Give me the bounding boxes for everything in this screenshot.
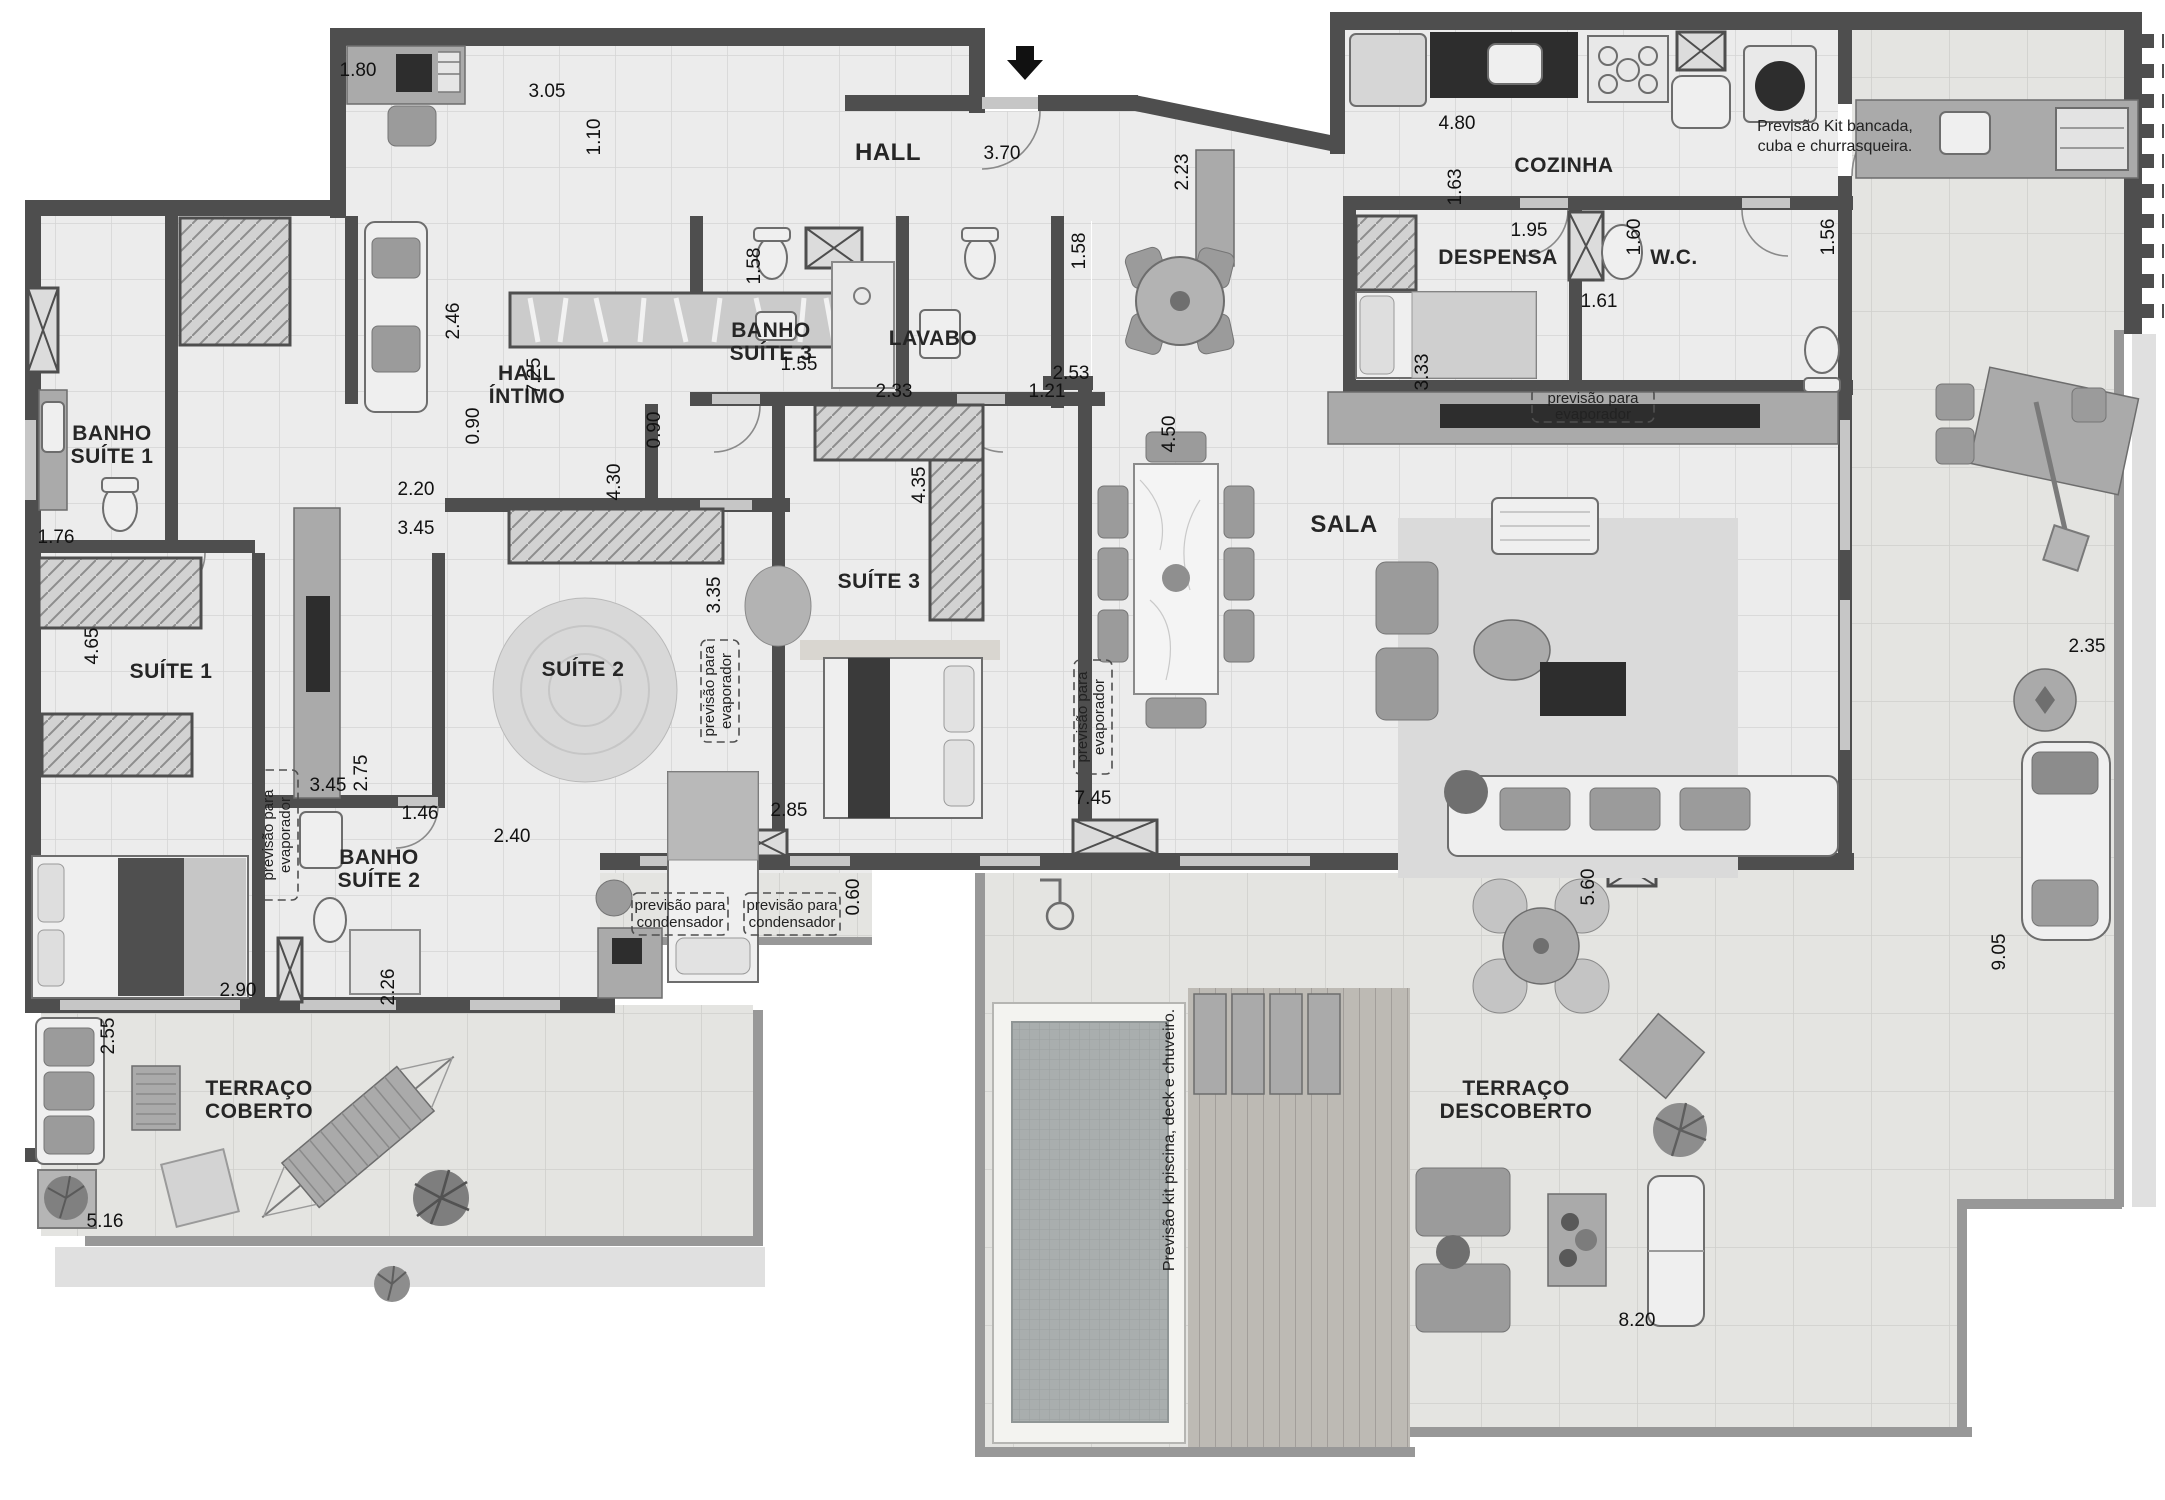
- fridge: [1350, 34, 1426, 106]
- chaise-lounge: [1416, 1168, 1510, 1236]
- dim-text: 2.40: [494, 826, 531, 847]
- suite2-closet: [509, 509, 723, 563]
- washing-machine: [1744, 46, 1816, 122]
- label-wc: W.C.: [1650, 246, 1698, 269]
- gourmet-drawers: [2056, 108, 2128, 170]
- armchair: [1376, 562, 1438, 634]
- shaft-icon: [1073, 820, 1157, 854]
- dim-text: 1.80: [340, 60, 377, 81]
- kitchen-table: [1123, 245, 1236, 356]
- side-pouf: [1444, 770, 1488, 814]
- dim-text: 7.25: [524, 358, 545, 395]
- dim-text: 3.45: [310, 775, 347, 796]
- label-banho-suite1-1: BANHO: [72, 422, 152, 445]
- stove: [1588, 36, 1668, 102]
- label-banho-suite3-1: BANHO: [731, 319, 811, 342]
- dim-text: 1.10: [584, 119, 605, 156]
- grass-tuft: [374, 1266, 410, 1302]
- dim-text: 0.90: [463, 408, 484, 445]
- dim-text: 5.16: [87, 1211, 124, 1232]
- pool-water: [1012, 1022, 1168, 1422]
- dim-text: 2.85: [771, 800, 808, 821]
- dim-text: 4.35: [909, 467, 930, 504]
- laundry-tub: [1672, 76, 1730, 128]
- sala-bench: [1492, 498, 1598, 554]
- label-hall: HALL: [855, 139, 921, 166]
- dim-text: 4.50: [1159, 416, 1180, 453]
- suite3-beanbag: [745, 566, 811, 646]
- label-banho-suite2-1: BANHO: [339, 846, 419, 869]
- palm-plant: [413, 1170, 469, 1226]
- gourmet-chair: [1936, 384, 1974, 420]
- dim-text: 1.58: [744, 248, 765, 285]
- dim-text: 2.90: [220, 980, 257, 1001]
- dim-text: 2.33: [876, 381, 913, 402]
- dim-text: 4.80: [1439, 113, 1476, 134]
- note-evaporador-sala-2: evaporador: [1555, 406, 1631, 423]
- corridor-closet: [180, 218, 290, 345]
- pouf: [1436, 1235, 1470, 1269]
- dim-text: 1.55: [781, 354, 818, 375]
- dim-text: 5.60: [1578, 869, 1599, 906]
- dim-text: 3.70: [984, 143, 1021, 164]
- gourmet-sink: [1940, 112, 1990, 154]
- dim-text: 2.26: [378, 969, 399, 1006]
- suite3-bed: [800, 640, 1000, 818]
- terrace-sofa: [36, 1018, 104, 1164]
- l-sofa: [1444, 770, 1838, 856]
- entrance-arrow-icon: [1007, 46, 1043, 80]
- note-evaporador-suite3-1: previsão para: [1074, 671, 1091, 763]
- dim-text: 2.23: [1172, 154, 1193, 191]
- note-kit-bancada-1: Previsão Kit bancada,: [1757, 118, 1913, 135]
- note-kit-piscina: Previsão kit piscina, deck e chuveiro.: [1161, 1009, 1178, 1271]
- coffee-table: [1474, 620, 1550, 680]
- dim-text: 9.05: [1989, 934, 2010, 971]
- dim-text: 2.35: [2069, 636, 2106, 657]
- shaft-icon: [1677, 32, 1725, 70]
- label-terraco-descoberto-1: TERRAÇO: [1462, 1077, 1569, 1100]
- dim-text: 3.35: [704, 577, 725, 614]
- note-evaporador-sala-1: previsão para: [1548, 390, 1640, 407]
- note-kit-bancada-2: cuba e churrasqueira.: [1758, 138, 1913, 155]
- dim-text: 1.56: [1818, 219, 1839, 256]
- dim-text: 3.05: [529, 81, 566, 102]
- suite1-closet-bottom: [42, 714, 192, 776]
- dim-text: 0.90: [644, 412, 665, 449]
- label-suite2: SUÍTE 2: [542, 658, 625, 681]
- sidewalk-bottom-left: [55, 1247, 765, 1287]
- note-condensador-1b: condensador: [637, 914, 724, 931]
- floor-plan-canvas: HALL HALL ÍNTIMO BANHO SUÍTE 1 SUÍTE 1 S…: [0, 0, 2165, 1500]
- coffee-table-marble: [1540, 662, 1626, 716]
- dim-text: 8.20: [1619, 1310, 1656, 1331]
- note-condensador-1a: previsão para: [635, 897, 727, 914]
- plant: [1653, 1103, 1707, 1157]
- dim-text: 3.45: [398, 518, 435, 539]
- label-sala: SALA: [1310, 511, 1377, 538]
- suite1-dresser: [294, 508, 340, 798]
- dim-text: 4.30: [604, 464, 625, 501]
- dim-text: 7.45: [1075, 788, 1112, 809]
- note-evaporador-suite2-2: evaporador: [718, 653, 735, 729]
- label-terraco-coberto-2: COBERTO: [205, 1100, 313, 1123]
- dim-text: 2.20: [398, 479, 435, 500]
- dim-text: 1.60: [1624, 219, 1645, 256]
- note-evaporador-suite1-1: previsão para: [260, 789, 277, 881]
- label-despensa: DESPENSA: [1438, 246, 1558, 269]
- dim-text: 0.60: [843, 879, 864, 916]
- label-lavabo: LAVABO: [889, 327, 978, 350]
- shaft-icon: [1569, 212, 1603, 280]
- gourmet-chair: [1936, 428, 1974, 464]
- suite2-bed: [668, 772, 758, 982]
- dim-text: 1.58: [1069, 233, 1090, 270]
- floor-plan-drawing: HALL HALL ÍNTIMO BANHO SUÍTE 1 SUÍTE 1 S…: [0, 0, 2165, 1500]
- suite1-closet-top: [39, 558, 201, 628]
- label-banho-suite1-2: SUÍTE 1: [71, 445, 154, 468]
- chaise-lounge: [1416, 1264, 1510, 1332]
- note-evaporador-suite2-1: previsão para: [701, 645, 718, 737]
- dim-text: 1.46: [402, 803, 439, 824]
- note-condensador-2b: condensador: [749, 914, 836, 931]
- outdoor-coffee-table: [1548, 1194, 1606, 1286]
- sidewalk-right: [2132, 334, 2156, 1207]
- note-evaporador-suite1-2: evaporador: [277, 797, 294, 873]
- dim-text: 1.76: [38, 527, 75, 548]
- shaft-icon: [278, 938, 302, 1002]
- dim-text: 1.63: [1445, 169, 1466, 206]
- facade-teeth: [2142, 18, 2164, 330]
- dim-text: 1.21: [1029, 381, 1066, 402]
- label-terraco-coberto-1: TERRAÇO: [205, 1077, 312, 1100]
- label-terraco-descoberto-2: DESCOBERTO: [1440, 1100, 1593, 1123]
- dim-text: 2.55: [98, 1018, 119, 1055]
- kitchen-sink: [1488, 44, 1542, 84]
- armchair: [1376, 648, 1438, 720]
- slatted-bench: [132, 1066, 180, 1130]
- label-suite3: SUÍTE 3: [838, 570, 921, 593]
- shaft-icon: [28, 288, 58, 372]
- label-suite1: SUÍTE 1: [130, 660, 213, 683]
- dim-text: 2.75: [351, 755, 372, 792]
- note-condensador-2a: previsão para: [747, 897, 839, 914]
- dim-text: 4.65: [82, 628, 103, 665]
- label-banho-suite2-2: SUÍTE 2: [338, 869, 421, 892]
- dim-text: 1.61: [1581, 291, 1618, 312]
- kitchen-cabinet: [1196, 150, 1234, 266]
- dim-text: 3.33: [1412, 354, 1433, 391]
- floor-cushion: [161, 1149, 239, 1227]
- suite2-rug: [493, 598, 677, 782]
- suite1-bed: [32, 856, 248, 998]
- gourmet-chair: [2072, 388, 2106, 422]
- hall-intimo-sofa: [365, 222, 427, 412]
- note-evaporador-suite3-2: evaporador: [1091, 679, 1108, 755]
- dim-text: 1.95: [1511, 220, 1548, 241]
- label-cozinha: COZINHA: [1514, 154, 1613, 177]
- dim-text: 2.46: [443, 303, 464, 340]
